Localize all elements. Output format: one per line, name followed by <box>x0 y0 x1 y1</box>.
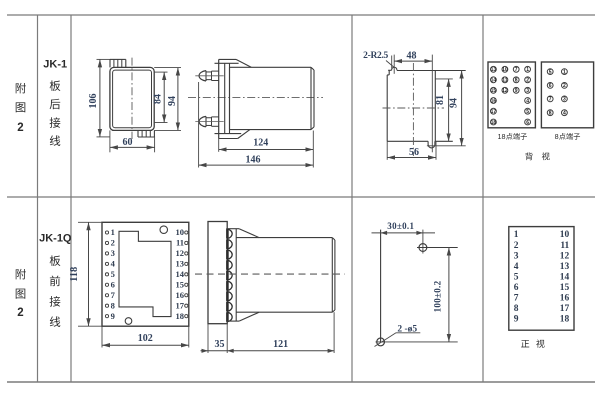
svg-text:1: 1 <box>514 230 519 240</box>
svg-text:10: 10 <box>502 67 508 73</box>
svg-text:13: 13 <box>491 67 497 73</box>
svg-text:2: 2 <box>514 241 519 251</box>
svg-text:118: 118 <box>69 267 80 282</box>
svg-text:13: 13 <box>176 258 185 268</box>
svg-text:16: 16 <box>491 98 497 104</box>
svg-text:8: 8 <box>111 300 115 310</box>
svg-text:18: 18 <box>498 132 506 141</box>
svg-text:8: 8 <box>514 304 519 314</box>
svg-text:1: 1 <box>563 69 566 75</box>
svg-text:7: 7 <box>111 290 116 300</box>
svg-text:5: 5 <box>111 269 115 279</box>
svg-text:9: 9 <box>515 88 518 94</box>
svg-text:9: 9 <box>111 311 115 321</box>
svg-text:15: 15 <box>176 279 185 289</box>
svg-text:124: 124 <box>253 137 268 148</box>
svg-text:JK-1: JK-1 <box>43 59 67 71</box>
svg-text:14: 14 <box>491 78 497 84</box>
svg-text:2-R2.5: 2-R2.5 <box>363 51 388 61</box>
svg-text:7: 7 <box>514 294 519 304</box>
svg-text:30±0.1: 30±0.1 <box>387 221 414 231</box>
svg-text:16: 16 <box>560 294 570 304</box>
svg-text:5: 5 <box>526 109 529 115</box>
svg-text:10: 10 <box>560 230 570 240</box>
svg-text:6: 6 <box>111 279 115 289</box>
svg-text:6: 6 <box>514 283 519 293</box>
svg-text:12: 12 <box>502 88 508 94</box>
svg-text:102: 102 <box>138 333 153 344</box>
svg-text:5: 5 <box>514 272 519 282</box>
svg-text:94: 94 <box>449 98 460 108</box>
svg-text:3: 3 <box>526 88 529 94</box>
svg-text:12: 12 <box>560 251 570 261</box>
svg-text:4: 4 <box>111 258 116 268</box>
svg-text:11: 11 <box>176 238 184 248</box>
svg-text:106: 106 <box>88 94 99 109</box>
svg-text:84: 84 <box>153 94 164 104</box>
svg-text:17: 17 <box>560 304 570 314</box>
svg-text:1: 1 <box>111 227 115 237</box>
svg-text:17: 17 <box>176 300 185 310</box>
svg-text:60: 60 <box>123 137 133 148</box>
svg-text:3: 3 <box>563 97 566 103</box>
svg-text:94: 94 <box>167 96 178 106</box>
svg-text:18: 18 <box>560 315 570 325</box>
svg-text:121: 121 <box>273 339 288 350</box>
svg-text:11: 11 <box>560 241 569 251</box>
svg-text:14: 14 <box>176 269 185 279</box>
svg-text:7: 7 <box>549 97 552 103</box>
svg-text:3: 3 <box>514 251 519 261</box>
svg-text:2: 2 <box>563 83 566 89</box>
svg-text:10: 10 <box>176 227 185 237</box>
svg-text:16: 16 <box>176 290 185 300</box>
svg-text:4: 4 <box>514 262 519 272</box>
svg-text:8: 8 <box>555 132 559 141</box>
svg-text:81: 81 <box>435 95 446 105</box>
svg-text:15: 15 <box>491 88 497 94</box>
svg-text:JK-1Q: JK-1Q <box>39 233 72 245</box>
svg-text:7: 7 <box>515 67 518 73</box>
svg-text:5: 5 <box>549 69 552 75</box>
svg-text:2: 2 <box>526 78 529 84</box>
svg-text:35: 35 <box>215 339 225 350</box>
svg-text:18: 18 <box>491 120 497 126</box>
svg-text:4: 4 <box>563 111 566 117</box>
svg-text:9: 9 <box>514 315 519 325</box>
svg-text:6: 6 <box>549 83 552 89</box>
svg-text:8: 8 <box>549 111 552 117</box>
svg-text:14: 14 <box>560 272 570 282</box>
svg-text:3: 3 <box>111 248 115 258</box>
svg-text:100±0.2: 100±0.2 <box>433 280 443 312</box>
svg-text:8: 8 <box>515 78 518 84</box>
svg-text:56: 56 <box>409 147 419 158</box>
svg-text:15: 15 <box>560 283 570 293</box>
svg-text:12: 12 <box>176 248 185 258</box>
svg-text:2: 2 <box>17 122 23 134</box>
svg-text:2: 2 <box>17 307 23 319</box>
svg-text:13: 13 <box>560 262 570 272</box>
svg-text:17: 17 <box>491 109 497 115</box>
svg-text:4: 4 <box>526 98 529 104</box>
svg-text:18: 18 <box>176 311 185 321</box>
svg-text:48: 48 <box>407 51 417 62</box>
svg-text:1: 1 <box>526 67 529 73</box>
svg-text:6: 6 <box>526 120 529 126</box>
svg-text:146: 146 <box>246 155 261 166</box>
svg-text:11: 11 <box>502 78 508 84</box>
svg-text:2: 2 <box>111 238 115 248</box>
